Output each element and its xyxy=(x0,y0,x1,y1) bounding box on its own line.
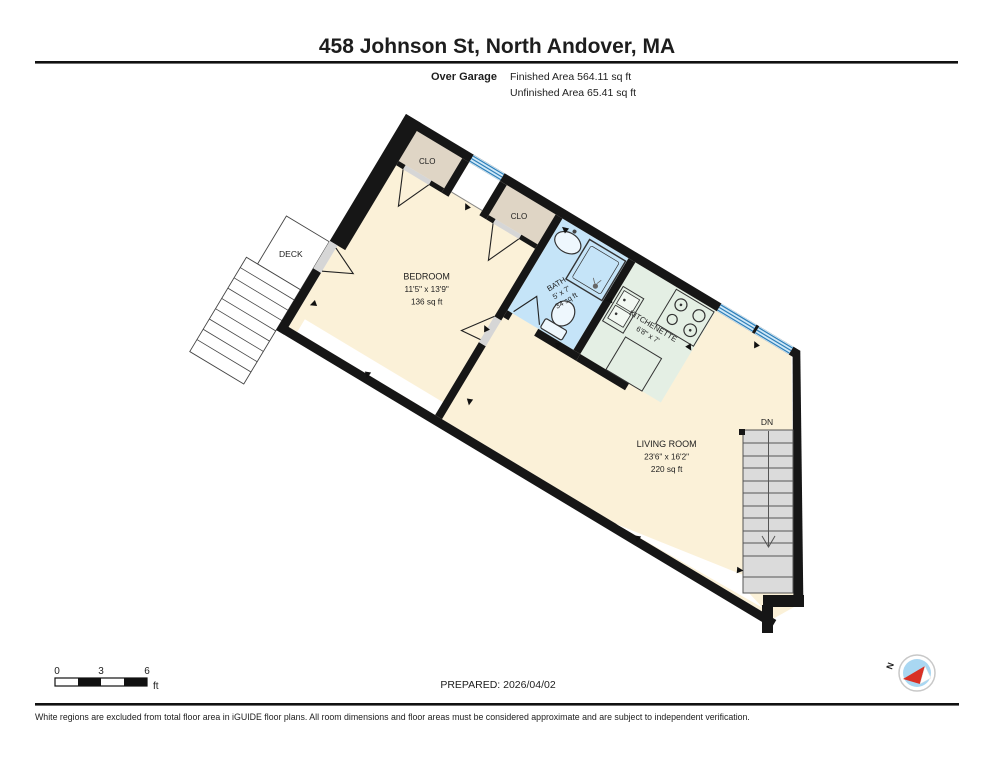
svg-text:ft: ft xyxy=(153,681,159,692)
interior-stairs: DN xyxy=(739,417,793,593)
svg-text:220 sq ft: 220 sq ft xyxy=(651,465,683,474)
floorplan-canvas: 458 Johnson St, North Andover, MA Over G… xyxy=(0,0,994,768)
unfinished-area-label: Unfinished Area 65.41 sq ft xyxy=(510,87,636,99)
compass-icon: N xyxy=(884,655,935,691)
svg-text:LIVING ROOM: LIVING ROOM xyxy=(637,439,697,449)
floor-plan: CLO CLO DECK BEDROOM 11'5" x 13'9" 136 s… xyxy=(190,82,915,690)
finished-area-label: Finished Area 564.11 sq ft xyxy=(510,71,631,83)
wall-notch-v xyxy=(762,605,773,633)
footer-divider xyxy=(35,703,959,706)
svg-text:CLO: CLO xyxy=(419,157,435,166)
svg-text:11'5" x 13'9": 11'5" x 13'9" xyxy=(404,285,448,294)
svg-text:DECK: DECK xyxy=(279,249,303,259)
svg-text:BEDROOM: BEDROOM xyxy=(403,271,450,281)
svg-text:23'6" x 16'2": 23'6" x 16'2" xyxy=(644,452,689,461)
compass-north-label: N xyxy=(884,661,896,671)
page-title: 458 Johnson St, North Andover, MA xyxy=(319,35,675,58)
floor-label: Over Garage xyxy=(431,71,497,83)
closet-1-label: CLO xyxy=(419,157,435,166)
prepared-date: PREPARED: 2026/04/02 xyxy=(440,679,556,691)
svg-text:3: 3 xyxy=(98,666,104,677)
deck-label: DECK xyxy=(279,249,303,259)
scale-bar: 0 3 6 ft xyxy=(54,666,159,692)
disclaimer-text: White regions are excluded from total fl… xyxy=(35,712,750,722)
svg-text:6: 6 xyxy=(144,666,150,677)
svg-text:0: 0 xyxy=(54,666,60,677)
header-divider xyxy=(35,61,958,64)
svg-text:136 sq ft: 136 sq ft xyxy=(411,297,443,306)
closet-2-label: CLO xyxy=(511,212,527,221)
svg-text:CLO: CLO xyxy=(511,212,527,221)
floorplan-page: 458 Johnson St, North Andover, MA Over G… xyxy=(0,0,994,768)
stairs-down-label: DN xyxy=(761,417,773,427)
